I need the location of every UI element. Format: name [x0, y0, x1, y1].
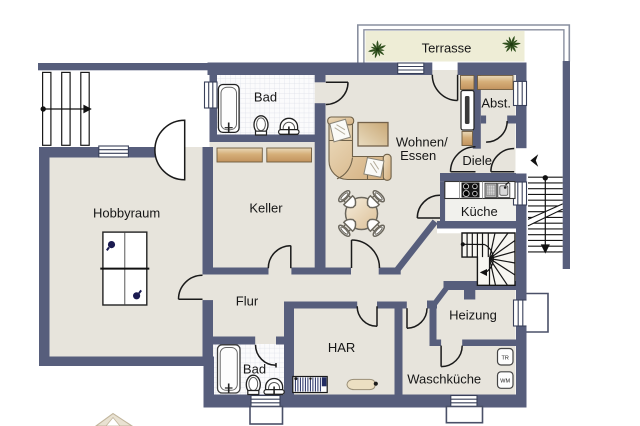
svg-text:Abst.: Abst. [481, 95, 511, 110]
svg-text:Essen: Essen [400, 148, 436, 163]
svg-text:HAR: HAR [328, 340, 355, 355]
svg-text:Hobbyraum: Hobbyraum [93, 206, 160, 221]
svg-text:Terrasse: Terrasse [422, 41, 472, 56]
svg-text:Keller: Keller [249, 201, 283, 216]
svg-text:Heizung: Heizung [449, 308, 497, 323]
svg-text:WM: WM [500, 378, 510, 384]
svg-text:Waschküche: Waschküche [407, 371, 481, 386]
svg-text:Bad: Bad [243, 362, 266, 377]
svg-text:Bad: Bad [254, 89, 277, 104]
svg-text:Diele: Diele [462, 153, 492, 168]
svg-text:Flur: Flur [236, 294, 259, 309]
svg-text:TR: TR [502, 355, 509, 361]
svg-text:Küche: Küche [461, 204, 498, 219]
